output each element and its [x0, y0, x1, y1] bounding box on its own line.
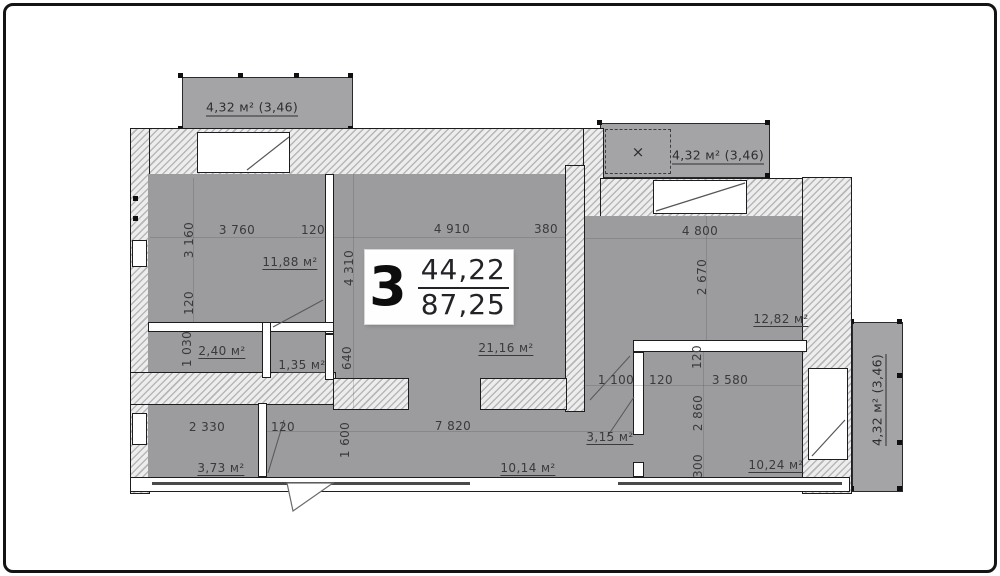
balcony-right-label: 4,32 м² (3,46) — [870, 354, 887, 446]
area-label-right-room: 12,82 м² — [753, 313, 808, 327]
dim-label-120-b: 120 — [183, 291, 195, 315]
area-label-right-hall: 3,15 м² — [586, 431, 633, 445]
dim-label-120-a: 120 — [301, 224, 325, 236]
area-label-small-hall: 1,35 м² — [278, 359, 325, 373]
apartment-area-fraction: 44,22 87,25 — [418, 254, 509, 320]
apartment-summary-box: 3 44,22 87,25 — [365, 250, 513, 324]
dim-label-380: 380 — [534, 223, 558, 235]
dim-label-1600: 1 600 — [339, 422, 351, 458]
dim-label-120-c: 120 — [271, 421, 295, 433]
dim-label-3760: 3 760 — [219, 224, 255, 236]
cross-mark: × — [632, 143, 645, 161]
dim-label-4310: 4 310 — [343, 250, 355, 286]
balcony-cross-box: × — [605, 129, 671, 174]
dim-label-300: 300 — [692, 454, 704, 478]
area-label-tl-room: 11,88 м² — [262, 256, 317, 270]
area-label-corridor: 10,14 м² — [500, 462, 555, 476]
dim-label-4910: 4 910 — [434, 223, 470, 235]
balcony-top-right-label: 4,32 м² (3,46) — [672, 148, 764, 165]
apartment-living-area: 44,22 — [418, 254, 509, 288]
area-label-bl-room: 3,73 м² — [197, 462, 244, 476]
apartment-total-area: 87,25 — [421, 289, 506, 320]
area-label-br-room: 10,24 м² — [748, 459, 803, 473]
dim-label-1030: 1 030 — [181, 331, 193, 367]
dim-label-120-e: 120 — [691, 345, 703, 369]
area-label-bath: 2,40 м² — [198, 345, 245, 359]
dim-label-1100: 1 100 — [598, 374, 634, 386]
balcony-top-left-label: 4,32 м² (3,46) — [206, 100, 298, 117]
dim-label-7820: 7 820 — [435, 420, 471, 432]
dim-label-2860: 2 860 — [692, 395, 704, 431]
dim-label-120-d: 120 — [649, 374, 673, 386]
dim-label-2670: 2 670 — [696, 259, 708, 295]
dim-label-640: 640 — [341, 346, 353, 370]
dim-label-2330: 2 330 — [189, 421, 225, 433]
dim-label-4800: 4 800 — [682, 225, 718, 237]
apartment-rooms-count: 3 — [369, 263, 407, 312]
dim-label-3580: 3 580 — [712, 374, 748, 386]
floor-plan: × 4,32 м² (3,46) 4,32 м² (3,46) 4,32 м² … — [0, 0, 1000, 576]
area-label-living: 21,16 м² — [478, 342, 533, 356]
dim-label-3160: 3 160 — [183, 222, 195, 258]
